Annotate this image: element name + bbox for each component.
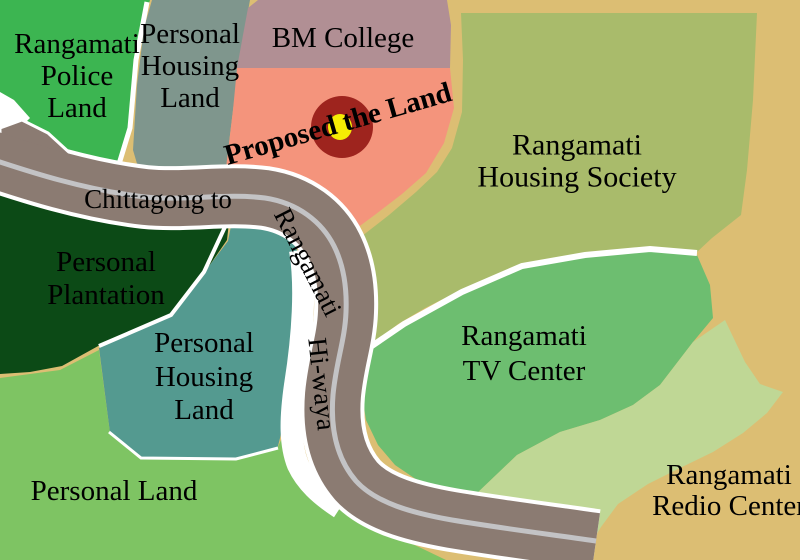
label-tv-center-line1: Rangamati bbox=[461, 320, 587, 352]
label-radio-center-line1: Rangamati bbox=[666, 459, 792, 491]
label-housing-north-line1: Personal bbox=[140, 18, 240, 50]
label-housing-central-line3: Land bbox=[174, 394, 234, 426]
label-plantation-line1: Personal bbox=[56, 246, 156, 278]
label-housing-society-line2: Housing Society bbox=[477, 161, 676, 194]
map-canvas: Rangamati Police Land Personal Housing L… bbox=[0, 0, 800, 560]
label-personal-land: Personal Land bbox=[31, 475, 198, 507]
label-police-land-line1: Rangamati bbox=[14, 28, 140, 60]
label-housing-north-line2: Housing bbox=[141, 50, 239, 82]
label-housing-north-line3: Land bbox=[160, 82, 220, 114]
label-housing-central-line1: Personal bbox=[154, 327, 254, 359]
label-housing-central-line2: Housing bbox=[155, 361, 253, 393]
label-plantation-line2: Plantation bbox=[47, 279, 165, 311]
label-police-land-line3: Land bbox=[47, 92, 107, 124]
label-police-land-line2: Police bbox=[41, 60, 114, 92]
label-road-chittagong-to: Chittagong to bbox=[84, 184, 232, 214]
label-radio-center-line2: Redio Center bbox=[652, 490, 800, 522]
label-housing-society-line1: Rangamati bbox=[512, 129, 642, 162]
label-bm-college: BM College bbox=[272, 22, 415, 54]
map-stage: Rangamati Police Land Personal Housing L… bbox=[0, 0, 800, 560]
label-tv-center-line2: TV Center bbox=[463, 355, 586, 387]
